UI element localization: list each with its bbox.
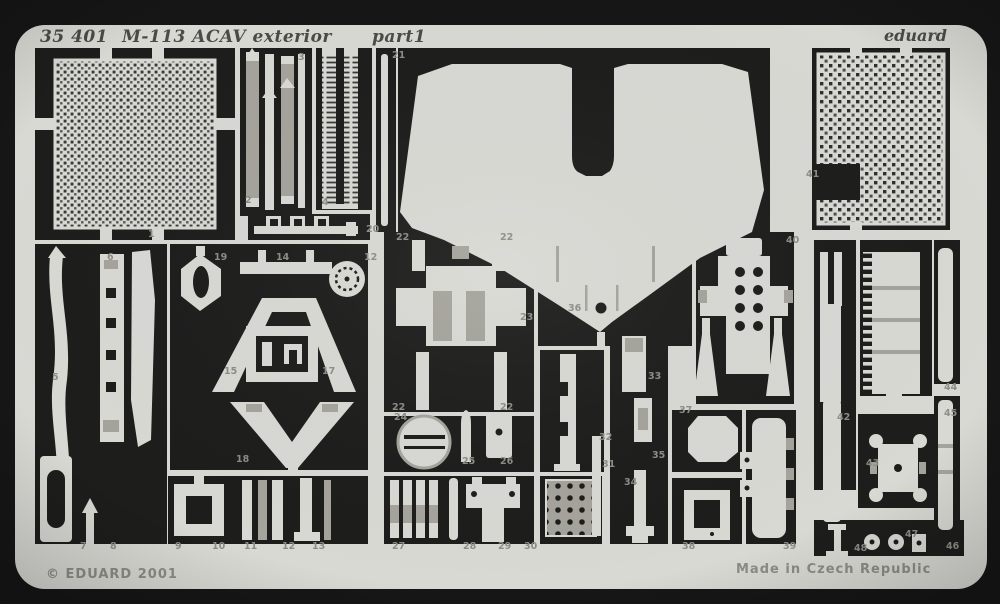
part-number: 36 [568, 303, 582, 314]
part-number: 3 [298, 52, 305, 63]
part-number: 9 [175, 541, 182, 552]
part-number: 11 [244, 541, 257, 552]
part-number: 33 [648, 371, 661, 382]
part-number: 44 [944, 382, 958, 393]
part-number: 24 [394, 412, 408, 423]
part-number: 29 [498, 541, 511, 552]
sawtooth-comb-piece [863, 252, 920, 408]
part-number: 23 [520, 312, 533, 323]
part-number: 25 [462, 456, 475, 467]
footer-copyright: © EDUARD 2001 [46, 567, 178, 582]
part-number: 21 [392, 50, 405, 61]
part-number: 15 [224, 366, 237, 377]
part-number: 30 [524, 541, 538, 552]
part-number: 37 [679, 405, 692, 416]
part-number: 31 [602, 459, 615, 470]
part-number: 18 [236, 454, 250, 465]
part-number: 35 [652, 450, 665, 461]
part-number: 27 [392, 541, 405, 552]
mesh-screen-part-41 [816, 46, 944, 232]
part-number: 45 [944, 408, 957, 419]
header-part-label: part1 [372, 27, 426, 47]
part-number: 43 [866, 458, 879, 469]
part-number: 22 [500, 232, 513, 243]
part-number: 39 [783, 541, 796, 552]
part-number: 17 [322, 366, 335, 377]
part-number: 13 [312, 541, 325, 552]
part-number: 12 [364, 252, 377, 263]
part-number: 22 [500, 402, 513, 413]
part-number: 47 [905, 529, 918, 540]
part-number: 41 [806, 169, 819, 180]
photo-of-photoetch-fret: 1234202156191412151718789101112132222232… [0, 0, 1000, 604]
part-number: 1 [148, 229, 155, 240]
part-number: 6 [107, 252, 114, 263]
part-number: 14 [276, 252, 290, 263]
part-number: 40 [786, 235, 800, 246]
part-number: 48 [854, 543, 868, 554]
part-number: 2 [245, 195, 252, 206]
part-number: 19 [214, 252, 227, 263]
part-number: 46 [946, 541, 960, 552]
part-number: 22 [396, 232, 409, 243]
part-number: 42 [837, 412, 850, 423]
mesh-screen-part-1 [35, 48, 235, 240]
part-number: 32 [599, 432, 612, 443]
part-number: 5 [52, 372, 59, 383]
part-number: 12 [282, 541, 295, 552]
perforated-plate-part-30 [546, 480, 596, 536]
footer-made-in: Made in Czech Republic [736, 562, 931, 577]
thin-strip-part-21 [381, 54, 388, 226]
part-number: 7 [80, 541, 87, 552]
header-title: M-113 ACAV exterior [121, 27, 332, 47]
part-number: 4 [322, 197, 329, 208]
header-catalog-number: 35 401 [40, 27, 108, 47]
part-number: 8 [110, 541, 117, 552]
part-number: 20 [366, 224, 380, 235]
part-number: 38 [682, 541, 696, 552]
brand-logo-eduard: eduard [884, 26, 947, 45]
part-number: 34 [624, 477, 638, 488]
part-number: 26 [500, 456, 514, 467]
part-number: 10 [212, 541, 226, 552]
part-number: 28 [463, 541, 477, 552]
